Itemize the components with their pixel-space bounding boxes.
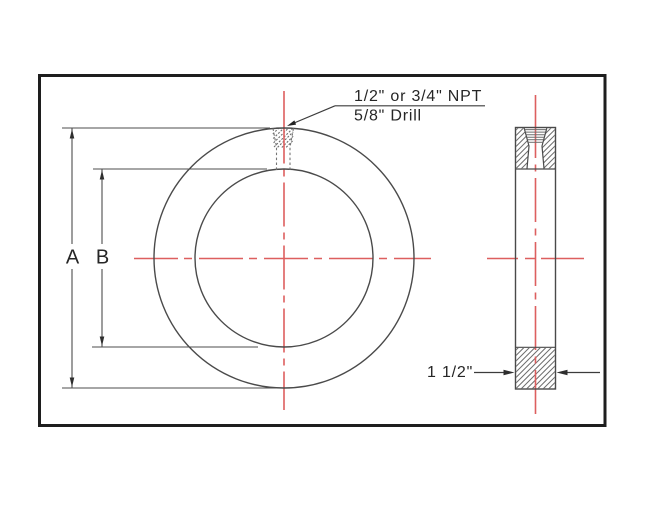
svg-text:1 1/2": 1 1/2" [427,364,473,381]
svg-text:A: A [66,247,80,269]
svg-text:B: B [96,247,109,269]
svg-text:1/2" or 3/4" NPT: 1/2" or 3/4" NPT [354,88,482,105]
svg-text:5/8" Drill: 5/8" Drill [354,108,422,125]
